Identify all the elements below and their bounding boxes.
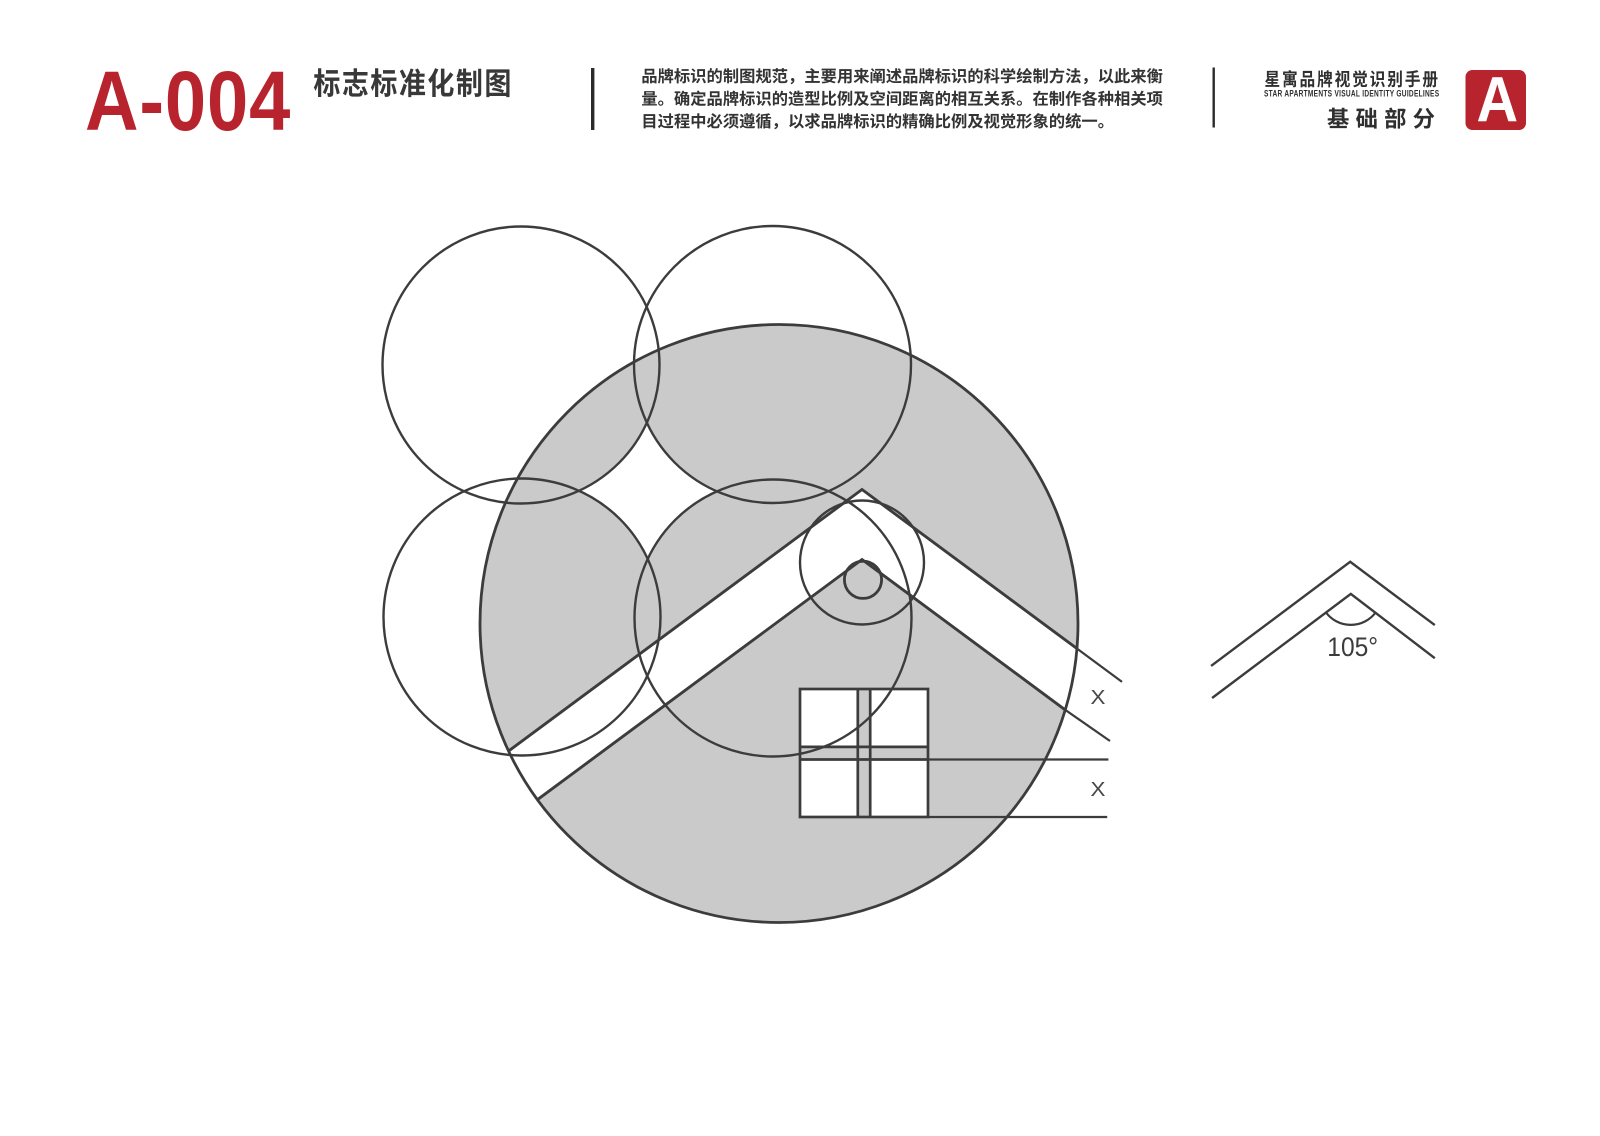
svg-text:A: A <box>1477 64 1519 135</box>
svg-text:STAR APARTMENTS VISUAL IDENTIT: STAR APARTMENTS VISUAL IDENTITY GUIDELIN… <box>1264 88 1439 98</box>
svg-text:X: X <box>1091 687 1106 709</box>
svg-text:105°: 105° <box>1327 633 1378 662</box>
svg-text:X: X <box>1091 779 1106 801</box>
svg-text:A-004: A-004 <box>85 54 291 148</box>
